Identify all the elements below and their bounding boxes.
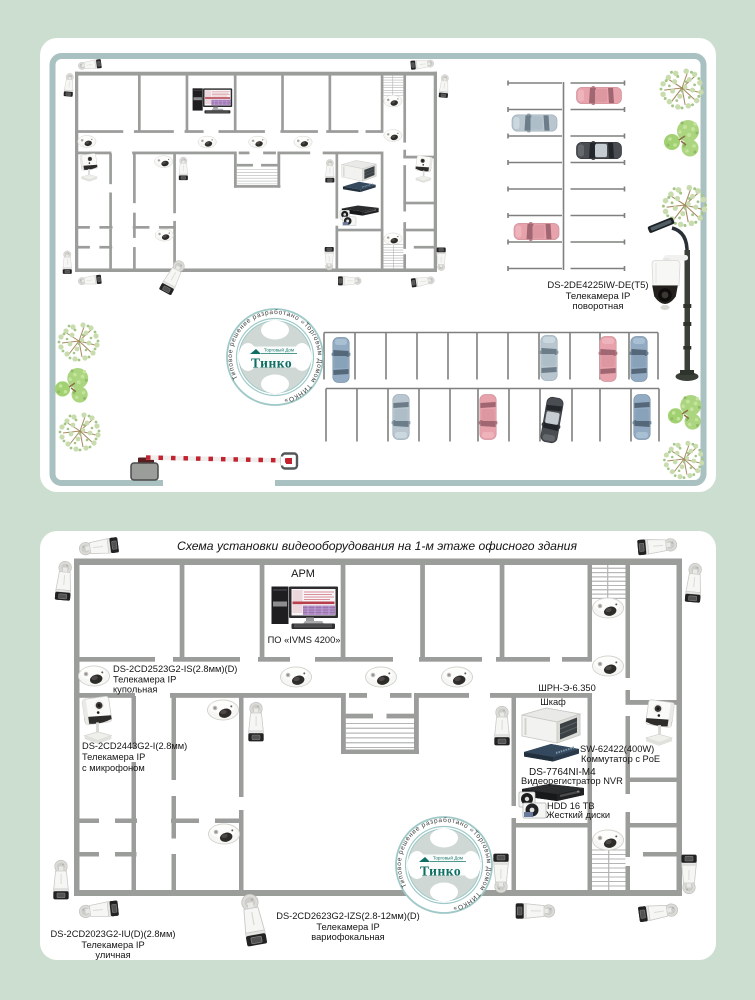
svg-text:DS-2CD2623G2-IZS(2.8-12мм)(D): DS-2CD2623G2-IZS(2.8-12мм)(D)	[276, 911, 420, 921]
svg-text:Жесткий диски: Жесткий диски	[546, 810, 610, 820]
svg-text:Телекамера IP: Телекамера IP	[82, 752, 145, 762]
svg-text:с микрофоном: с микрофоном	[82, 763, 145, 773]
svg-text:Телекамера IP: Телекамера IP	[113, 675, 176, 685]
svg-text:АРМ: АРМ	[291, 568, 315, 580]
svg-text:поворотная: поворотная	[572, 301, 623, 312]
svg-text:вариофокальная: вариофокальная	[311, 932, 384, 942]
svg-text:Видеорегистратор NVR: Видеорегистратор NVR	[521, 776, 623, 786]
svg-text:Шкаф: Шкаф	[540, 697, 566, 707]
svg-text:DS-2CD2023G2-IU(D)(2.8мм): DS-2CD2023G2-IU(D)(2.8мм)	[51, 929, 176, 939]
svg-text:Телекамера IP: Телекамера IP	[316, 922, 379, 932]
svg-text:уличная: уличная	[95, 950, 130, 960]
svg-text:DS-2DE4225IW-DE(T5): DS-2DE4225IW-DE(T5)	[547, 280, 648, 291]
svg-text:ШРН-Э-6.350: ШРН-Э-6.350	[538, 683, 596, 693]
svg-text:SW-62422(400W): SW-62422(400W)	[580, 744, 654, 754]
svg-text:ПО «IVMS 4200»: ПО «IVMS 4200»	[268, 635, 341, 645]
svg-text:Телекамера IP: Телекамера IP	[81, 940, 144, 950]
svg-text:DS-2CD2443G2-I(2.8мм): DS-2CD2443G2-I(2.8мм)	[82, 741, 187, 751]
svg-text:DS-2CD2523G2-IS(2.8мм)(D): DS-2CD2523G2-IS(2.8мм)(D)	[113, 664, 237, 674]
svg-text:купольная: купольная	[113, 685, 157, 695]
svg-text:Коммутатор с PoE: Коммутатор с PoE	[581, 754, 660, 764]
svg-text:Схема установки видеооборудова: Схема установки видеооборудования на 1-м…	[177, 539, 577, 553]
